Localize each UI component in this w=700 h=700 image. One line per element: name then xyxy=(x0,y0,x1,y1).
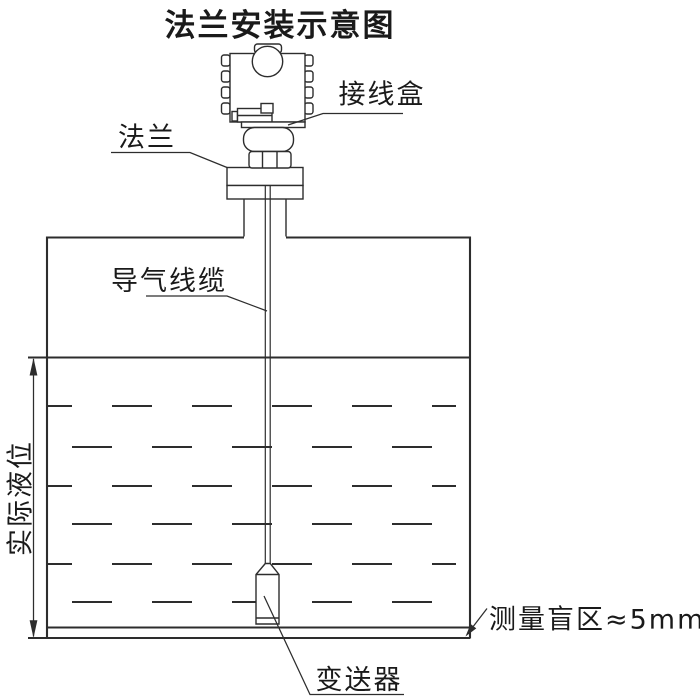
actual-level-label: 实际液位 xyxy=(6,440,37,556)
housing-rib xyxy=(305,55,314,66)
junction-box-label: 接线盒 xyxy=(339,80,426,111)
transmitter-probe xyxy=(256,564,279,625)
terminal-cover xyxy=(261,104,273,114)
terminal-tab xyxy=(232,112,238,122)
transmitter-head xyxy=(222,44,314,168)
housing-rib xyxy=(305,103,314,114)
tank xyxy=(28,237,470,639)
flange-installation-diagram: 法兰安装示意图 xyxy=(0,0,700,700)
housing-rib xyxy=(222,71,231,82)
flange-leader xyxy=(111,153,227,168)
housing-rib xyxy=(222,103,231,114)
flange-label: 法兰 xyxy=(118,123,176,154)
callout-air-guide-cable: 导气线缆 xyxy=(111,266,267,311)
hex-nut xyxy=(249,152,291,169)
dimension-arrow-up-icon xyxy=(30,358,38,376)
callout-flange: 法兰 xyxy=(111,123,227,168)
actual-level-dimension: 实际液位 xyxy=(6,358,38,638)
probe-body xyxy=(256,564,279,625)
air-guide-cable xyxy=(265,186,270,564)
flange-plate xyxy=(227,168,303,186)
housing-rib xyxy=(305,71,314,82)
air-guide-cable-label: 导气线缆 xyxy=(111,266,227,297)
diagram-title: 法兰安装示意图 xyxy=(165,8,396,44)
air-guide-cable-leader xyxy=(146,296,267,311)
callout-blind-zone: 测量盲区≈5mm xyxy=(466,605,700,637)
housing-cap xyxy=(252,46,282,76)
blind-zone-label: 测量盲区≈5mm xyxy=(489,605,700,636)
process-connector xyxy=(244,128,294,152)
housing-rib xyxy=(222,55,231,66)
dimension-arrow-down-icon xyxy=(30,620,38,638)
blind-zone-leader xyxy=(473,609,487,627)
transmitter-label: 变送器 xyxy=(316,665,403,696)
housing-rib xyxy=(305,87,314,98)
housing-rib xyxy=(222,87,231,98)
callout-transmitter: 变送器 xyxy=(264,596,404,696)
